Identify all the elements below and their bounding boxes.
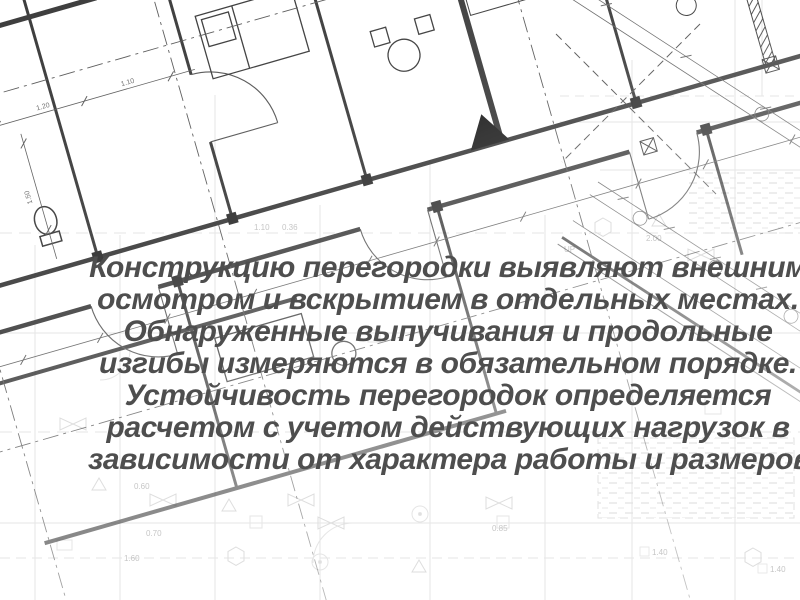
svg-text:1.10: 1.10 <box>120 78 135 89</box>
slide-text-line: изгибы измеряются в обязательном порядке… <box>88 348 800 380</box>
svg-text:2.00: 2.00 <box>646 234 662 243</box>
slide-text-line: Обнаруженные выпучивания и продольные <box>88 316 800 348</box>
svg-text:1.50: 1.50 <box>24 190 35 205</box>
svg-text:0.60: 0.60 <box>134 482 150 491</box>
svg-text:1.40: 1.40 <box>652 548 668 557</box>
slide-text-line: осмотром и вскрытием в отдельных местах. <box>88 284 800 316</box>
svg-text:1.10: 1.10 <box>254 223 270 232</box>
slide-text-line: Устойчивость перегородок определяется <box>88 380 800 412</box>
svg-text:0.36: 0.36 <box>282 223 298 232</box>
slide-text-line: Конструкцию перегородки выявляют внешним <box>88 252 800 284</box>
svg-text:1.20: 1.20 <box>36 102 51 113</box>
slide-text-line: расчетом с учетом действующих нагрузок в <box>88 412 800 444</box>
svg-text:1.60: 1.60 <box>124 554 140 563</box>
slide-text: Конструкцию перегородки выявляют внешним… <box>88 252 800 476</box>
slide-text-line: зависимости от характера работы и размер… <box>88 444 800 476</box>
svg-text:1.40: 1.40 <box>770 565 786 574</box>
svg-text:0.85: 0.85 <box>492 524 508 533</box>
svg-text:0.70: 0.70 <box>146 529 162 538</box>
slide-canvas: 1.10 0.36 2.00 UP 0.60 0.70 1.60 0.85 1.… <box>0 0 800 600</box>
